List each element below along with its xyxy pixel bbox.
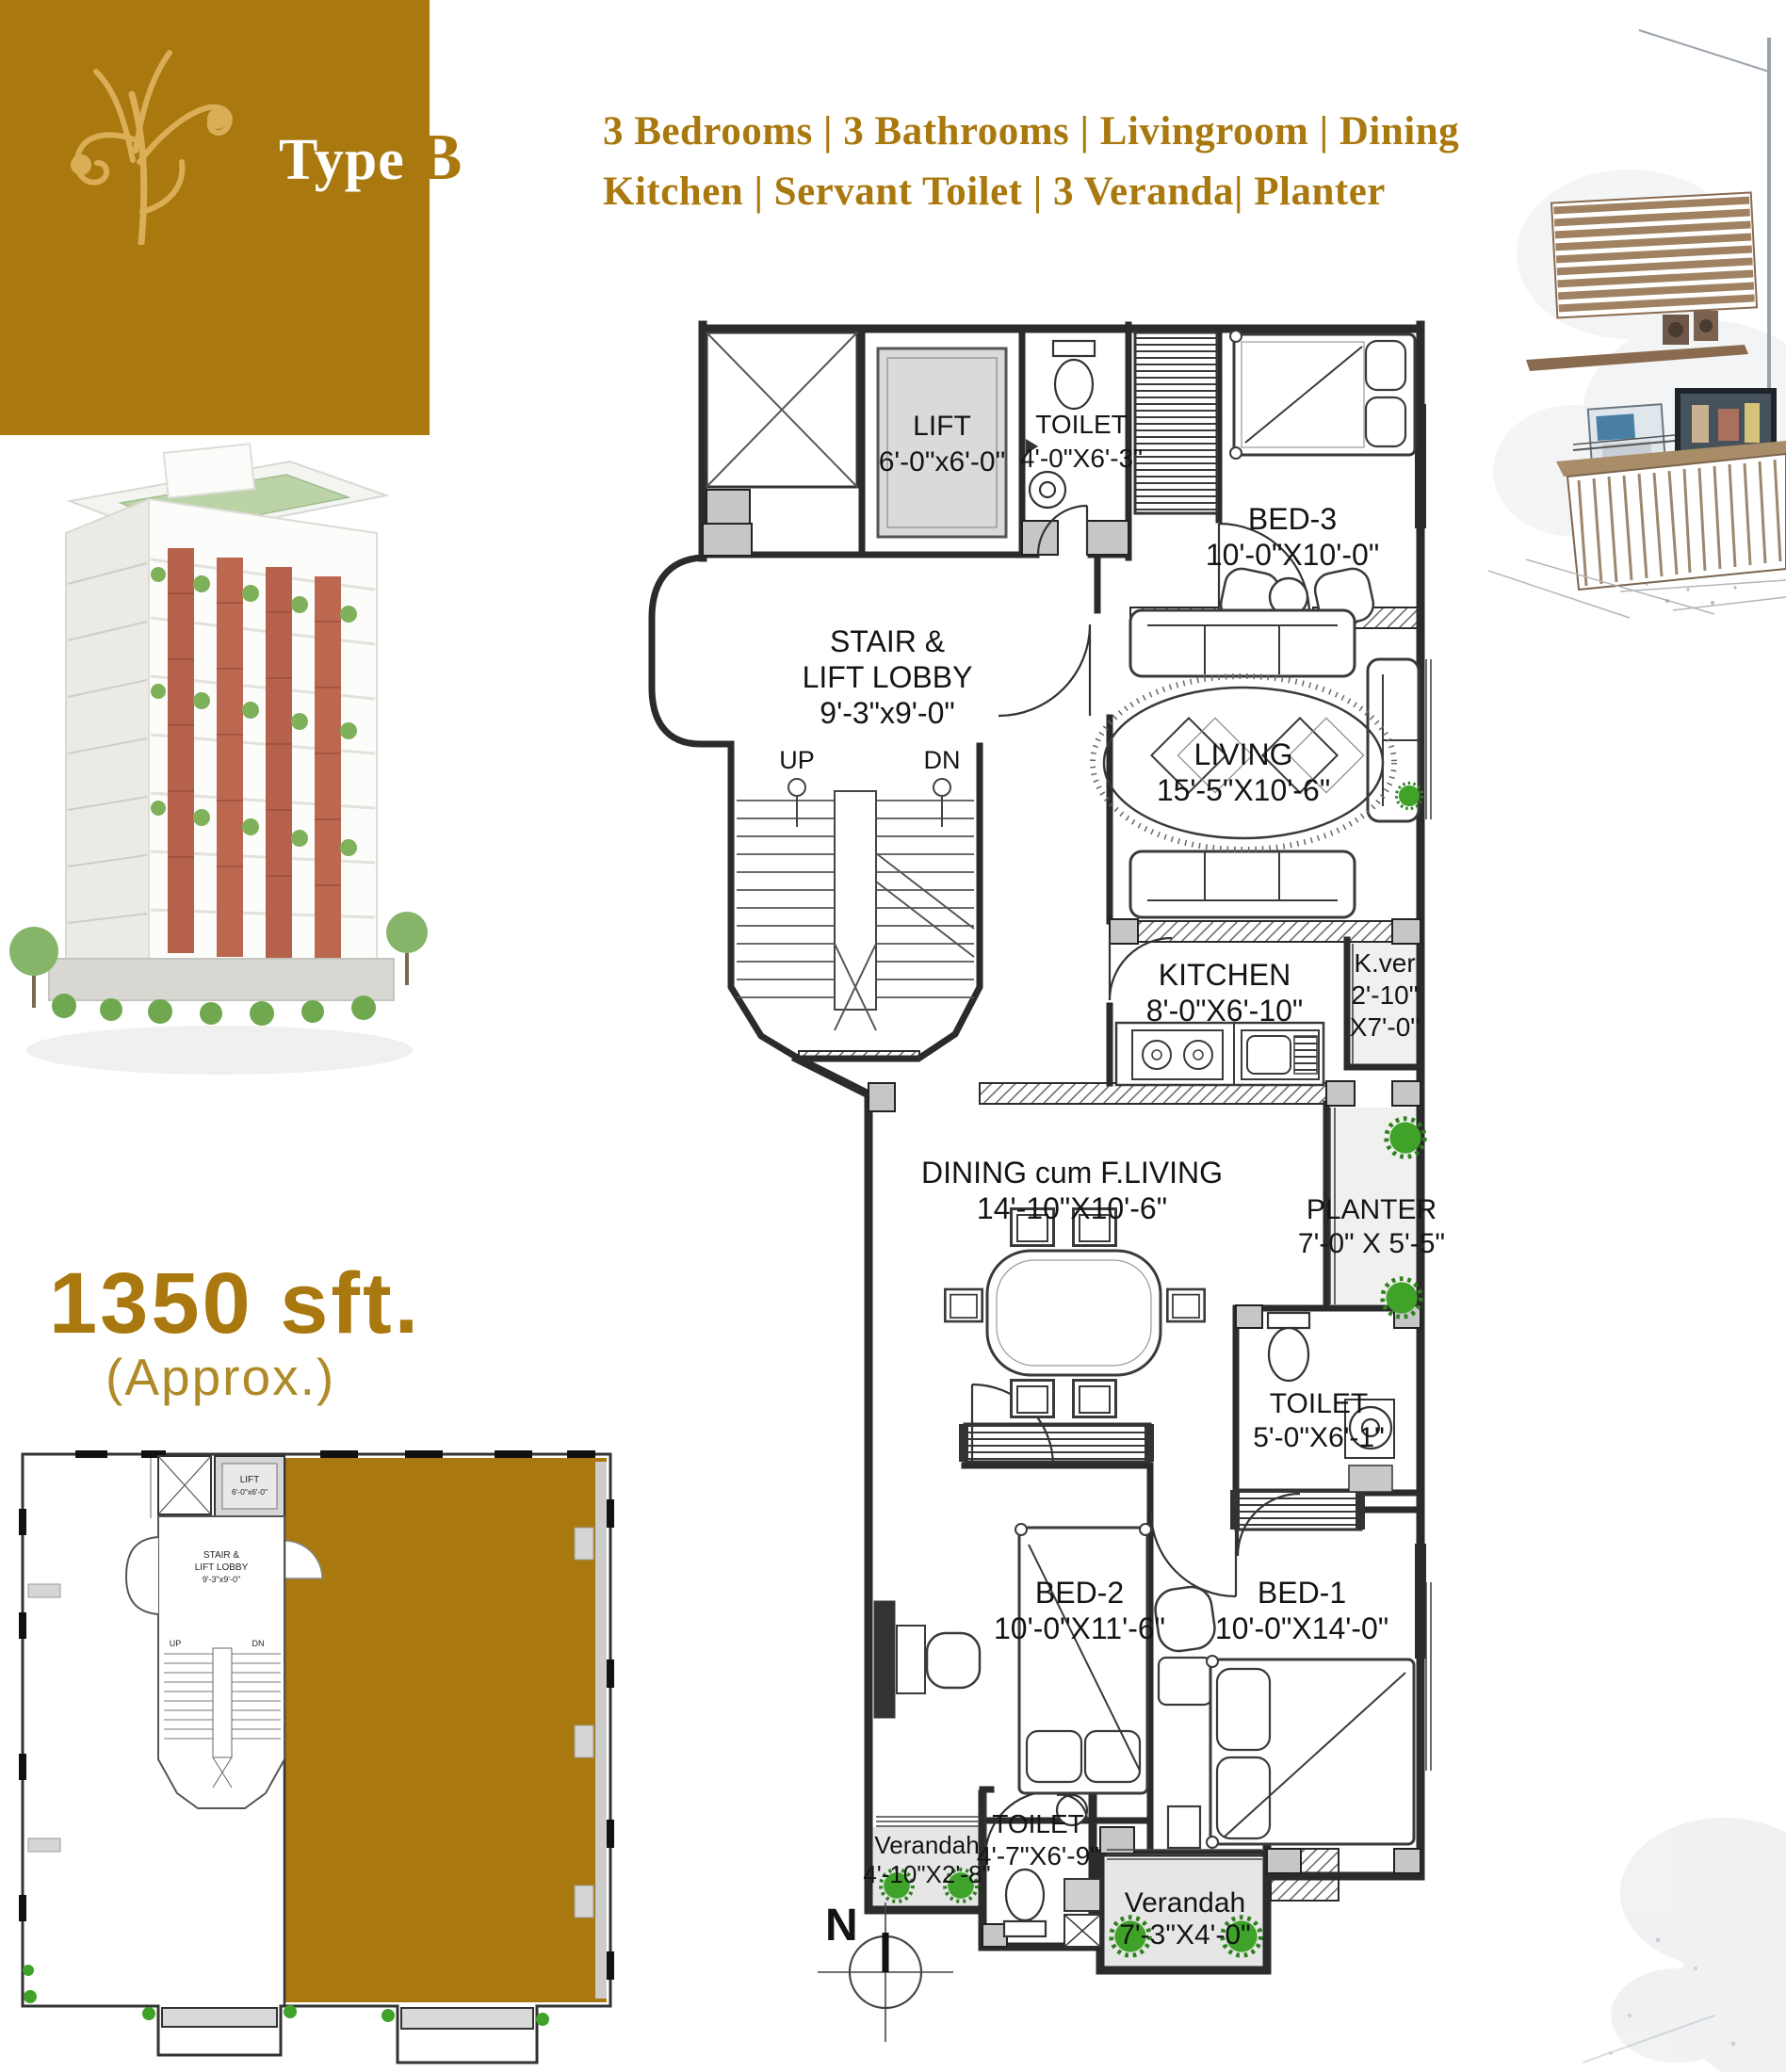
- feature-line-1: 3 Bedrooms | 3 Bathrooms | Livingroom | …: [603, 102, 1479, 162]
- key-plan: LIFT 6'-0"x6'-0" STAIR & LIFT LOBBY 9'-3…: [9, 1443, 635, 2070]
- room-dims-toilet-top: 4'-0"X6'-3": [1020, 444, 1143, 473]
- room-label-lobby-2: LIFT LOBBY: [803, 660, 973, 694]
- room-dims-planter: 7'-0" X 5'-5": [1298, 1228, 1445, 1259]
- room-label-verandah-left: Verandah: [874, 1831, 979, 1859]
- room-dims-kitchen: 8'-0"X6'-10": [1146, 994, 1304, 1028]
- key-plan-lift-label: LIFT: [240, 1475, 260, 1485]
- slat-panel: [1551, 192, 1757, 317]
- room-label-kver: K.ver: [1354, 948, 1415, 978]
- room-dims-bed3: 10'-0"X10'-0": [1206, 538, 1379, 572]
- area-note: (Approx.): [106, 1347, 335, 1407]
- key-plan-up: UP: [170, 1639, 182, 1648]
- room-dims-bed2: 10'-0"X11'-6": [994, 1611, 1165, 1645]
- area-value: 1350 sft.: [49, 1255, 421, 1353]
- room-label-toilet-top: TOILET: [1035, 410, 1128, 439]
- watercolor-smudge: [1545, 1733, 1786, 2072]
- room-dims-toilet-bottom: 4'-7"X6'-9": [977, 1841, 1099, 1870]
- room-label-lobby-1: STAIR &: [830, 624, 945, 658]
- room-dims-toilet-mid: 5'-0"X6'-1": [1253, 1422, 1384, 1453]
- key-plan-lobby-3: 9'-3"x9'-0": [203, 1575, 240, 1584]
- room-dims-verandah-right: 7'-3"X4'-0": [1119, 1919, 1250, 1951]
- room-dims-bed1: 10'-0"X14'-0": [1215, 1611, 1388, 1645]
- room-dims-dining: 14'-10"X10'-6": [977, 1191, 1167, 1225]
- building-rendering: [8, 443, 431, 1093]
- room-label-bed1: BED-1: [1258, 1576, 1346, 1610]
- room-label-toilet-bottom: TOILET: [992, 1809, 1084, 1838]
- bed3-furniture: [1218, 331, 1415, 628]
- stair-dn-label: DN: [924, 746, 961, 774]
- room-dims-lift2: 6'-0"x6'-0": [879, 446, 1005, 478]
- room-label-dining: DINING cum F.LIVING: [921, 1156, 1223, 1190]
- room-label-lift: LIFT: [913, 411, 971, 442]
- north-label: N: [825, 1901, 858, 1951]
- room-dims-lobby: 9'-3"x9'-0": [820, 696, 954, 730]
- room-dims-living: 15'-5"X10'-6": [1157, 773, 1330, 807]
- staircase: [737, 779, 974, 1030]
- type-word: Type: [279, 127, 405, 194]
- key-plan-dn: DN: [252, 1639, 265, 1648]
- floor-plan: LIFT 6'-0"x6'-0" TOILET 4'-0"X6'-3" BED-…: [645, 306, 1446, 2058]
- feature-list: 3 Bedrooms | 3 Bathrooms | Livingroom | …: [603, 102, 1479, 222]
- room-label-kitchen: KITCHEN: [1159, 958, 1291, 992]
- room-label-toilet-mid: TOILET: [1270, 1388, 1368, 1419]
- bed2-furniture: [874, 1524, 1151, 1793]
- kitchen-fixtures: [1116, 1023, 1323, 1085]
- room-dims-kver-2: X7'-0": [1350, 1012, 1420, 1042]
- brochure-page: Type B 3 Bedrooms | 3 Bathrooms | Living…: [0, 0, 1786, 2072]
- highlighted-unit: [284, 1458, 607, 2002]
- room-dims-kver-1: 2'-10": [1351, 980, 1418, 1010]
- room-label-bed2: BED-2: [1035, 1576, 1124, 1610]
- interior-sketch: [1488, 19, 1786, 622]
- room-dims-verandah-left: 4'-10"X2'-8": [863, 1860, 990, 1888]
- gold-banner: [0, 0, 430, 435]
- type-letter: B: [418, 121, 463, 196]
- room-label-bed3: BED-3: [1248, 502, 1337, 536]
- room-label-verandah-right: Verandah: [1125, 1887, 1245, 1918]
- north-arrow: N: [818, 1901, 953, 2042]
- stair-up-label: UP: [779, 746, 815, 774]
- room-label-living: LIVING: [1194, 737, 1293, 771]
- key-plan-lobby-1: STAIR &: [203, 1550, 239, 1561]
- feature-line-2: Kitchen | Servant Toilet | 3 Veranda| Pl…: [603, 162, 1479, 222]
- room-label-planter: PLANTER: [1307, 1194, 1437, 1225]
- flourish-icon: [47, 19, 264, 245]
- page-title: Type B: [279, 121, 462, 196]
- key-plan-lobby-2: LIFT LOBBY: [195, 1562, 249, 1573]
- key-plan-lift-dims: 6'-0"x6'-0": [232, 1487, 268, 1497]
